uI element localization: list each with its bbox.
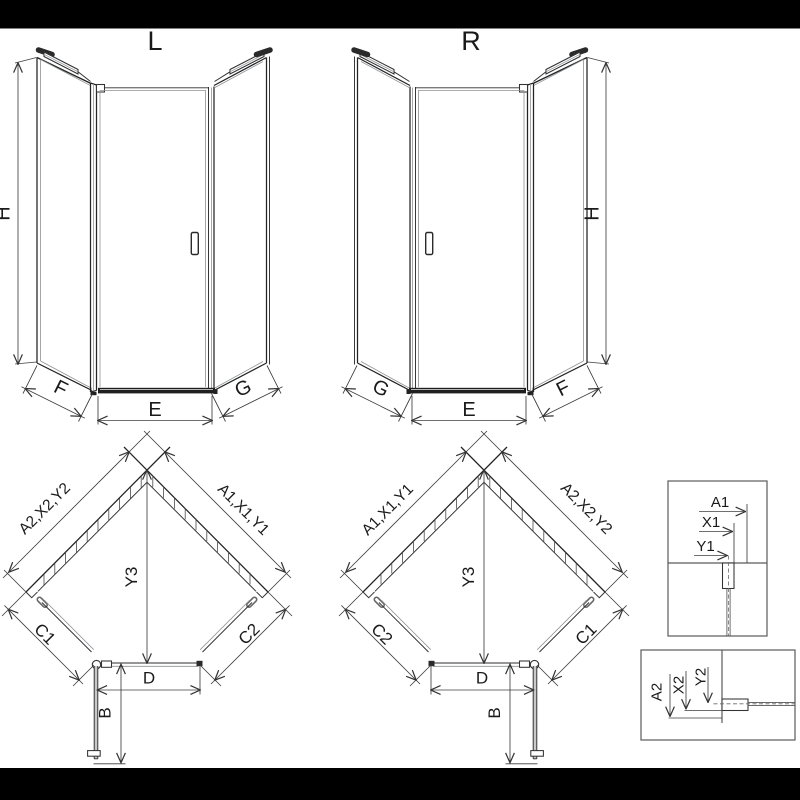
plan-view-right-geometry (339, 431, 629, 764)
plan-right-depth-label: Y3 (459, 567, 478, 588)
plan-right-door-label: D (476, 669, 488, 688)
front-left-door-label: E (148, 399, 161, 421)
plan-view-left-geometry (2, 431, 292, 764)
letterbox-bottom (0, 768, 800, 800)
detail-bottom-inner-label: Y2 (693, 668, 710, 686)
front-left-title: L (147, 26, 162, 56)
front-view-left-geometry (15, 50, 283, 425)
front-right-side-right-label: F (553, 376, 574, 401)
plan-right-wall-right-label: A2,X2,Y2 (557, 480, 615, 538)
plan-left-panel-left-label: C1 (30, 620, 59, 649)
front-view-right-geometry (342, 50, 610, 425)
front-right-height-label: H (582, 206, 604, 220)
plan-left-depth-label: Y3 (122, 567, 141, 588)
drawing-canvas: L H F E G R H G E F A2,X2,Y2 A1,X1,Y1 Y3… (0, 0, 800, 800)
front-right-title: R (461, 26, 481, 56)
plan-left-wall-left-label: A2,X2,Y2 (16, 480, 74, 538)
plan-right-panel-right-label: C1 (572, 620, 601, 649)
wall-profile (722, 699, 748, 711)
plan-left-door-label: D (143, 669, 155, 688)
shower-enclosure-technical-drawing: L H F E G R H G E F A2,X2,Y2 A1,X1,Y1 Y3… (0, 0, 800, 800)
plan-left-panel-right-label: C2 (235, 620, 264, 649)
letterbox-top (0, 0, 800, 29)
front-left-height-label: H (0, 206, 15, 220)
detail-top-outer-label: A1 (711, 494, 729, 511)
front-left-side-left-label: F (50, 376, 71, 401)
detail-bottom-outer-label: A2 (649, 683, 666, 701)
detail-top-inner-label: Y1 (696, 538, 714, 555)
detail-top-mid-label: X1 (702, 514, 720, 531)
plan-right-panel-left-label: C2 (367, 620, 396, 649)
detail-bottom-mid-label: X2 (671, 676, 688, 694)
plan-right-swing-label: B (485, 707, 504, 718)
plan-left-swing-label: B (96, 707, 115, 718)
front-right-door-label: E (462, 399, 475, 421)
